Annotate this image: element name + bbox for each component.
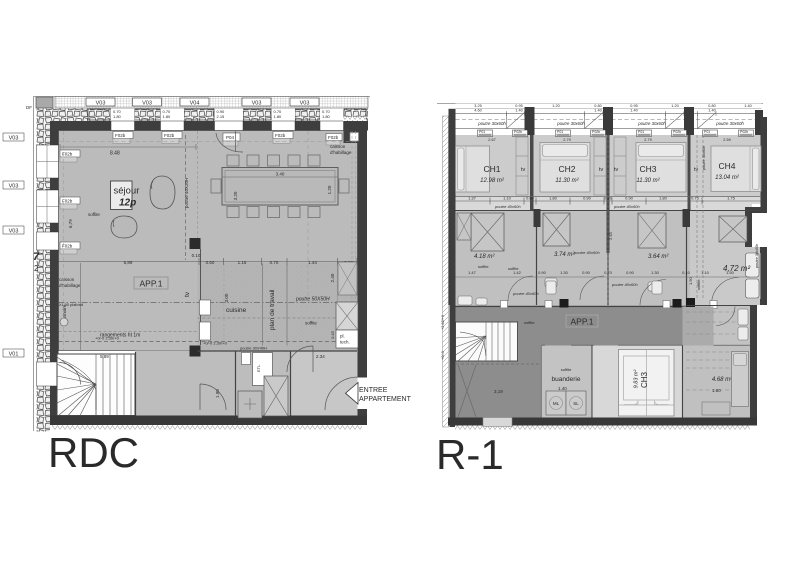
svg-text:F02b: F02b — [115, 133, 126, 138]
svg-text:APPARTEMENT: APPARTEMENT — [359, 396, 412, 403]
svg-text:P02b: P02b — [740, 130, 748, 134]
svg-text:DF: DF — [26, 105, 32, 110]
svg-text:1.50: 1.50 — [726, 270, 735, 275]
svg-text:1.80: 1.80 — [712, 388, 721, 393]
svg-text:V03: V03 — [252, 100, 262, 106]
svg-text:SL: SL — [573, 401, 579, 406]
svg-text:0.90: 0.90 — [538, 270, 547, 275]
svg-text:poutre 30x60h: poutre 30x60h — [715, 121, 744, 126]
svg-text:tv: tv — [694, 167, 699, 173]
svg-text:2.15: 2.15 — [217, 114, 226, 119]
svg-text:RDC: RDC — [48, 429, 139, 476]
svg-text:CH1: CH1 — [483, 164, 500, 174]
svg-text:11.30 m²: 11.30 m² — [636, 178, 660, 184]
svg-text:1.30: 1.30 — [651, 270, 660, 275]
svg-text:0.70: 0.70 — [604, 270, 613, 275]
svg-text:buanderie: buanderie — [552, 376, 581, 383]
svg-text:poutre 50X50H: poutre 50X50H — [295, 297, 330, 303]
svg-text:2.34: 2.34 — [316, 354, 325, 359]
svg-text:séjour: séjour — [114, 186, 140, 197]
svg-text:V03: V03 — [96, 100, 106, 106]
svg-text:5,89: 5,89 — [100, 354, 109, 359]
svg-text:2.79: 2.79 — [644, 138, 651, 142]
svg-text:poutre 40X20H: poutre 40X20H — [184, 178, 189, 208]
svg-text:0.80: 0.80 — [594, 104, 601, 108]
svg-text:3.40: 3.40 — [276, 172, 285, 177]
svg-text:poutre 40x60h: poutre 40x60h — [613, 204, 640, 209]
svg-text:0.45: 0.45 — [330, 330, 335, 339]
svg-text:CH3: CH3 — [639, 164, 656, 174]
svg-text:CH4: CH4 — [718, 161, 735, 171]
svg-text:2.59: 2.59 — [723, 138, 730, 142]
svg-text:1.80: 1.80 — [274, 114, 283, 119]
svg-text:≥1.90 plafond: ≥1.90 plafond — [59, 302, 83, 307]
svg-text:soffite: soffite — [305, 321, 317, 326]
svg-text:V03: V03 — [300, 100, 310, 106]
svg-text:V01: V01 — [9, 351, 19, 357]
svg-text:1.40: 1.40 — [744, 104, 751, 108]
svg-text:P02b: P02b — [592, 130, 600, 134]
svg-text:0.90: 0.90 — [626, 270, 635, 275]
svg-text:4.18 m²: 4.18 m² — [474, 254, 495, 260]
svg-text:d'habillage: d'habillage — [59, 283, 81, 288]
svg-text:poutre 30x60h: poutre 30x60h — [556, 121, 585, 126]
svg-text:1.40: 1.40 — [515, 109, 522, 113]
svg-text:1.40: 1.40 — [558, 386, 567, 391]
svg-text:2: 2 — [34, 264, 39, 273]
svg-text:F02b: F02b — [328, 135, 339, 140]
svg-text:2.79: 2.79 — [563, 138, 570, 142]
svg-text:1.40: 1.40 — [594, 109, 601, 113]
svg-text:0.60: 0.60 — [206, 260, 215, 265]
svg-text:ML: ML — [553, 401, 560, 406]
svg-text:pl.: pl. — [340, 334, 345, 339]
svg-text:P01: P01 — [557, 130, 563, 134]
svg-text:0.10: 0.10 — [682, 270, 691, 275]
svg-text:0.10: 0.10 — [192, 253, 201, 258]
svg-text:V03: V03 — [142, 100, 152, 106]
svg-text:poutre 30X40H: poutre 30X40H — [239, 346, 267, 351]
svg-text:1.50: 1.50 — [688, 276, 693, 285]
svg-text:1.30: 1.30 — [560, 270, 569, 275]
svg-text:tv: tv — [521, 167, 526, 173]
svg-text:soffite: soffite — [478, 264, 489, 269]
svg-text:+2.62/+0: +2.62/+0 — [441, 315, 445, 330]
svg-text:tv: tv — [599, 167, 604, 173]
svg-text:1.20: 1.20 — [327, 185, 332, 194]
svg-text:1.40: 1.40 — [708, 109, 715, 113]
svg-text:poutre 40x60h: poutre 40x60h — [512, 291, 539, 296]
svg-text:3,19: 3,19 — [494, 389, 503, 394]
svg-text:cuisine: cuisine — [226, 307, 247, 314]
svg-text:3.00: 3.00 — [224, 293, 229, 302]
svg-text:7: 7 — [33, 251, 40, 263]
svg-text:soffite: soffite — [508, 266, 519, 271]
svg-text:2.40: 2.40 — [330, 273, 335, 282]
svg-text:V03: V03 — [9, 183, 19, 189]
svg-text:6,79: 6,79 — [68, 219, 73, 228]
svg-text:1.15: 1.15 — [238, 260, 247, 265]
svg-text:9.83 m²: 9.83 m² — [634, 370, 640, 389]
svg-text:3.74 m²: 3.74 m² — [554, 252, 575, 258]
svg-text:0.80: 0.80 — [708, 104, 715, 108]
svg-text:1.90: 1.90 — [215, 389, 220, 398]
svg-text:ETL: ETL — [256, 364, 261, 372]
svg-text:poutre 30x60h: poutre 30x60h — [702, 146, 706, 171]
svg-text:1.10: 1.10 — [701, 270, 710, 275]
svg-text:soffite: soffite — [561, 367, 572, 372]
svg-text:P04: P04 — [226, 135, 235, 140]
svg-text:d'habillage: d'habillage — [330, 150, 352, 155]
svg-text:0.70: 0.70 — [270, 260, 279, 265]
svg-text:P01: P01 — [479, 130, 485, 134]
svg-text:1.40: 1.40 — [630, 109, 637, 113]
svg-text:2.43: 2.43 — [608, 231, 613, 240]
svg-text:3.20: 3.20 — [233, 191, 238, 200]
svg-text:R-1: R-1 — [436, 431, 504, 478]
svg-text:rangements ht 1m: rangements ht 1m — [100, 333, 140, 339]
svg-text:APP.1: APP.1 — [570, 317, 593, 327]
svg-text:11.30 m²: 11.30 m² — [555, 178, 579, 184]
svg-text:0.90: 0.90 — [582, 270, 591, 275]
svg-text:tv: tv — [614, 167, 619, 173]
svg-text:13.04 m²: 13.04 m² — [715, 175, 740, 181]
svg-text:V04: V04 — [190, 100, 200, 106]
svg-text:F02b: F02b — [164, 133, 175, 138]
svg-text:V03: V03 — [9, 228, 19, 234]
svg-text:CH2: CH2 — [558, 164, 575, 174]
svg-text:CH3: CH3 — [640, 371, 649, 388]
svg-text:tech.: tech. — [340, 340, 350, 345]
svg-text:F02b: F02b — [275, 133, 286, 138]
svg-text:5,89: 5,89 — [124, 260, 133, 265]
svg-text:plan de travail: plan de travail — [269, 289, 276, 330]
svg-text:poutre 30x60h: poutre 30x60h — [477, 121, 506, 126]
svg-text:0.95: 0.95 — [515, 104, 522, 108]
svg-text:1.80: 1.80 — [322, 114, 331, 119]
svg-text:poutre 40x60h: poutre 40x60h — [611, 282, 638, 287]
svg-text:1.47: 1.47 — [468, 270, 477, 275]
svg-text:poutre 30x60h: poutre 30x60h — [637, 121, 666, 126]
svg-text:2.67: 2.67 — [488, 138, 495, 142]
svg-text:P02b: P02b — [673, 130, 681, 134]
svg-text:12.98 m²: 12.98 m² — [480, 178, 505, 184]
svg-text:caisson: caisson — [330, 144, 346, 149]
svg-text:P02b: P02b — [514, 130, 522, 134]
svg-text:1.44: 1.44 — [308, 260, 317, 265]
svg-text:8.48: 8.48 — [110, 151, 120, 157]
svg-text:caisson: caisson — [59, 277, 75, 282]
svg-text:1.20: 1.20 — [671, 104, 678, 108]
svg-text:4.68 m²: 4.68 m² — [712, 377, 733, 383]
svg-text:poutre 40x60h: poutre 40x60h — [494, 204, 521, 209]
svg-text:+0/-0: +0/-0 — [441, 351, 445, 360]
svg-text:0.95: 0.95 — [630, 104, 637, 108]
svg-text:soffite: soffite — [88, 212, 100, 217]
svg-text:V03: V03 — [9, 135, 19, 141]
svg-text:ENTREE: ENTREE — [359, 387, 388, 394]
svg-text:1.20: 1.20 — [552, 104, 559, 108]
svg-text:P01: P01 — [638, 130, 644, 134]
svg-text:1.80: 1.80 — [163, 114, 172, 119]
svg-text:tv: tv — [184, 291, 191, 297]
svg-text:poutre 40x60h: poutre 40x60h — [573, 250, 600, 255]
svg-text:1.80: 1.80 — [113, 114, 122, 119]
svg-text:3.25: 3.25 — [474, 104, 481, 108]
svg-text:APP.1: APP.1 — [139, 279, 162, 289]
svg-text:4.60: 4.60 — [474, 109, 481, 113]
svg-text:P01: P01 — [704, 130, 710, 134]
svg-text:poutre 30x60h: poutre 30x60h — [755, 244, 759, 269]
svg-text:12p: 12p — [119, 198, 136, 209]
svg-text:soffite: soffite — [524, 320, 535, 325]
svg-text:3.64 m²: 3.64 m² — [648, 254, 669, 260]
